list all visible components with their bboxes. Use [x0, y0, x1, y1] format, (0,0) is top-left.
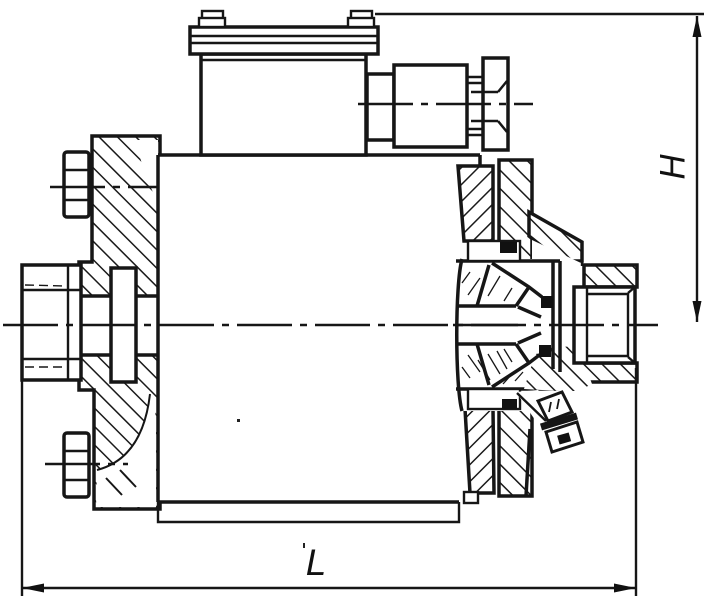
svg-text:H: H [654, 154, 693, 180]
svg-text:L: L [306, 542, 327, 583]
